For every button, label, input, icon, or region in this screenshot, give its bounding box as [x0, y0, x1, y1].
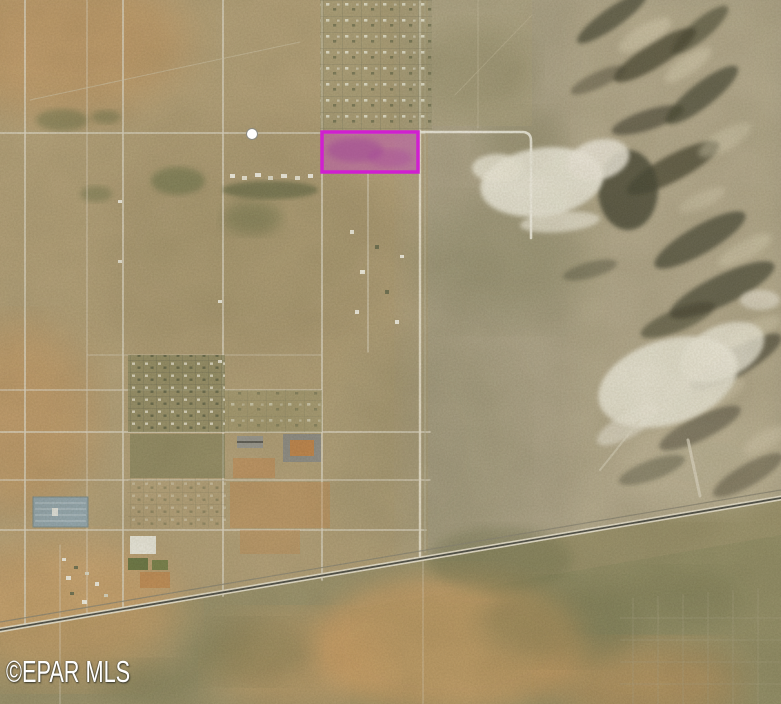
location-marker: [247, 129, 258, 140]
highlighted-parcel: [322, 132, 418, 172]
satellite-map-image: ©EPAR MLS: [0, 0, 781, 704]
parcel-overlay: [322, 132, 418, 172]
aerial-photo-canvas: [0, 0, 781, 704]
satellite-texture: [0, 0, 781, 704]
mls-watermark: ©EPAR MLS: [6, 656, 130, 687]
